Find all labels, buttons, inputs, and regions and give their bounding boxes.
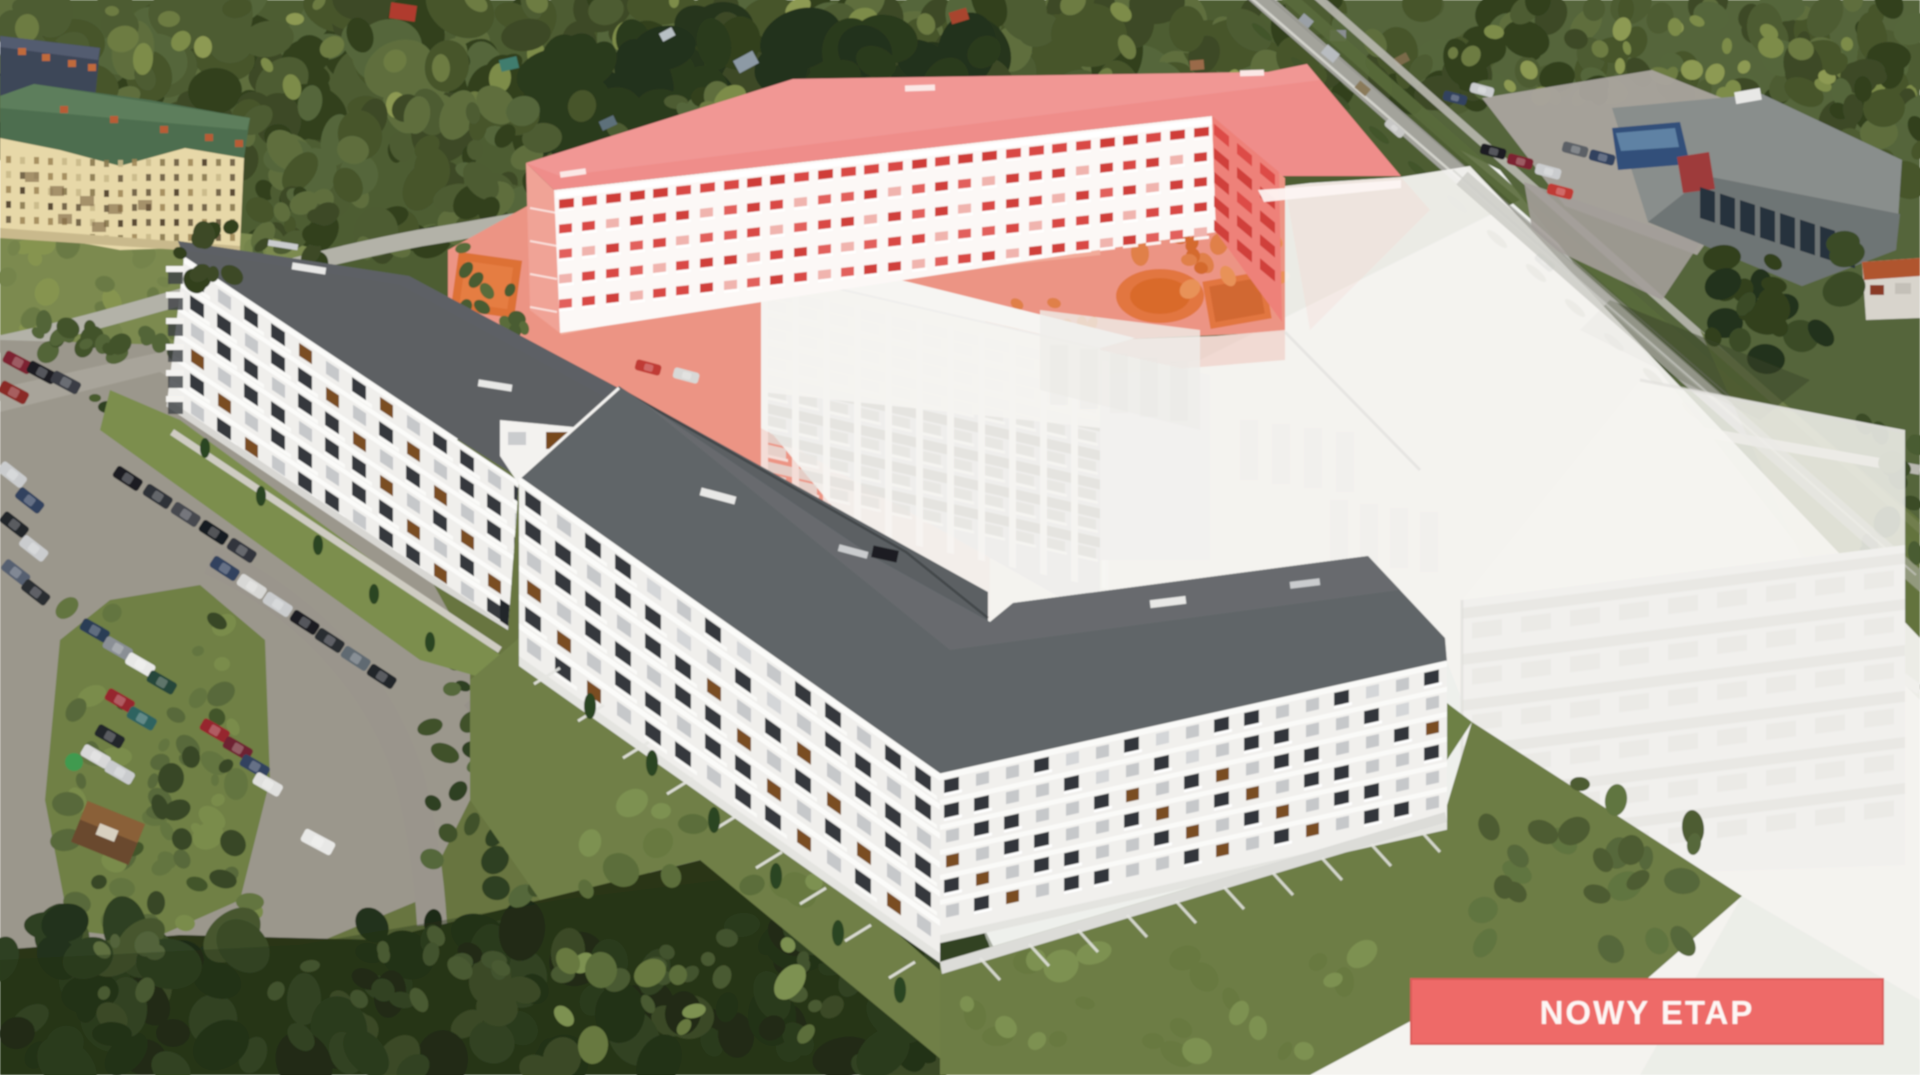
svg-text:NOWY ETAP: NOWY ETAP [1540, 994, 1755, 1031]
